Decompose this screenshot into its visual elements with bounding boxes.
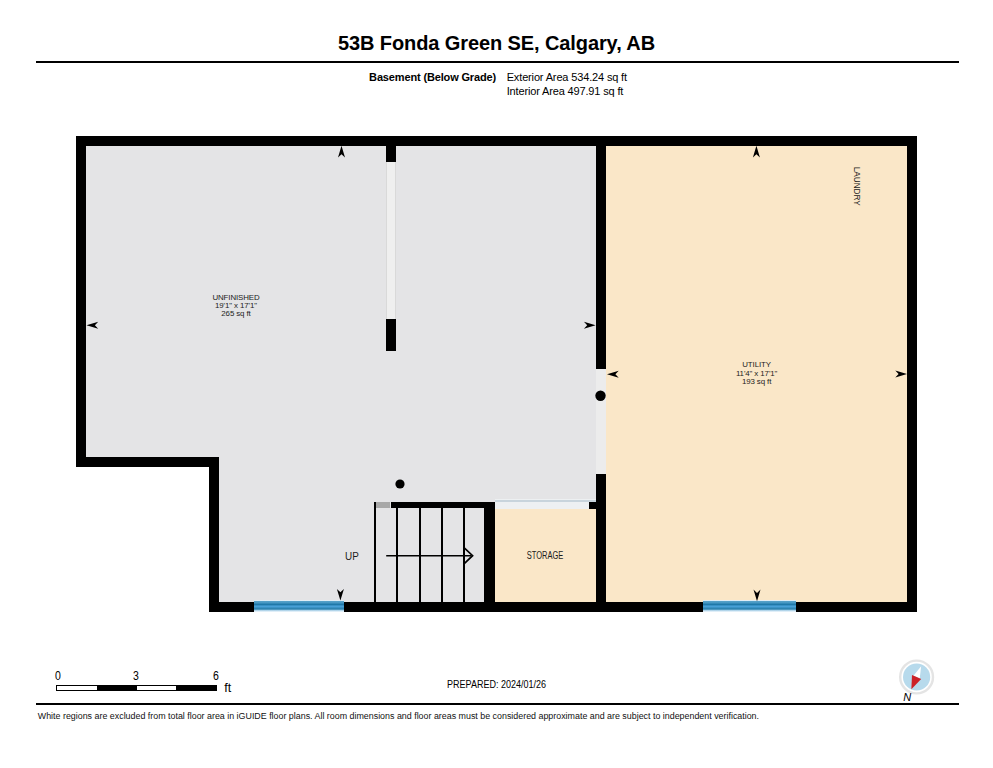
svg-text:N: N <box>903 691 911 703</box>
